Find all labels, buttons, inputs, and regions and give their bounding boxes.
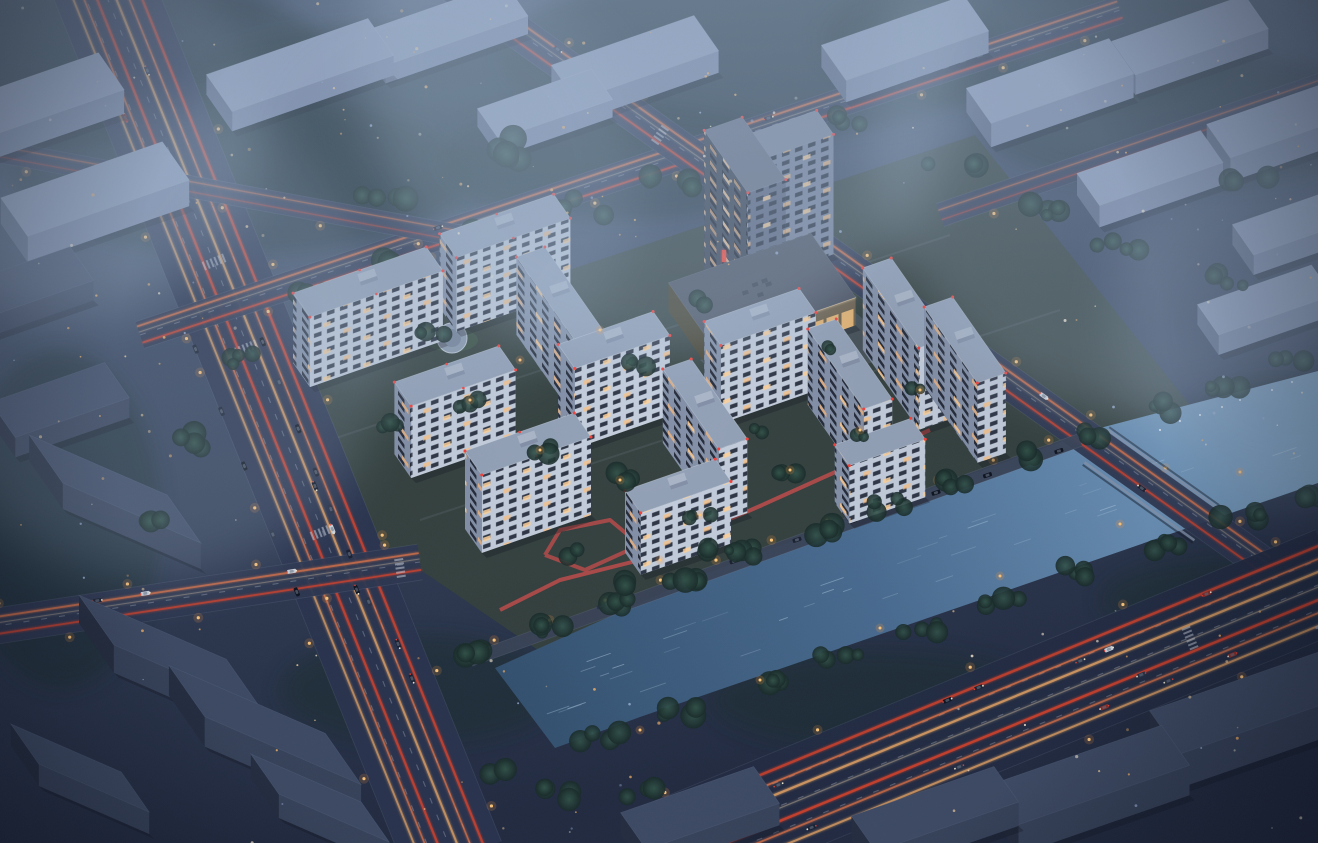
rendering-canvas [0, 0, 1318, 843]
film-grain-overlay [0, 0, 1318, 843]
aerial-rendering-image [0, 0, 1318, 843]
